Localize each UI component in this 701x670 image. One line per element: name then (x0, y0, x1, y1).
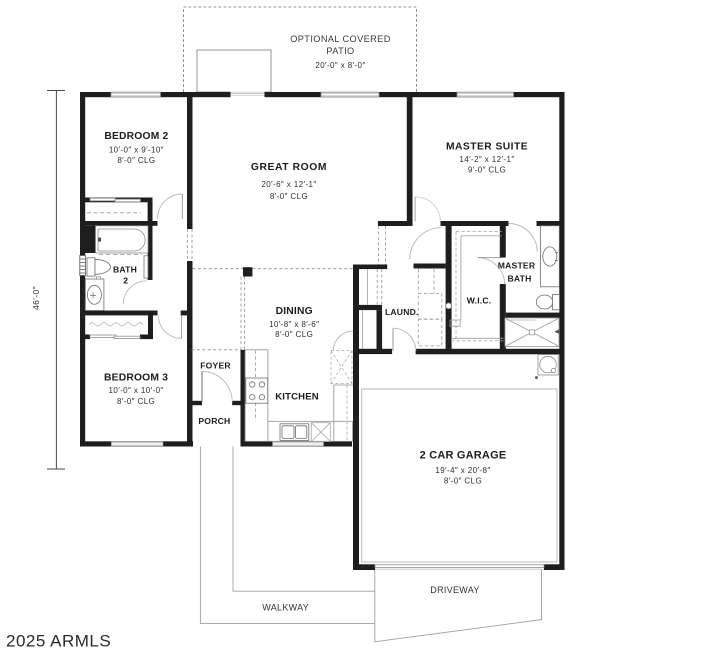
svg-text:14′-2″ x 12′-1″: 14′-2″ x 12′-1″ (459, 155, 514, 164)
svg-text:8′-0″ CLG: 8′-0″ CLG (444, 476, 482, 485)
svg-text:PATIO: PATIO (326, 46, 354, 56)
svg-text:MASTER: MASTER (498, 261, 536, 271)
svg-text:8′-0″ CLG: 8′-0″ CLG (275, 330, 313, 339)
svg-text:KITCHEN: KITCHEN (275, 392, 319, 403)
svg-text:WALKWAY: WALKWAY (262, 603, 309, 613)
svg-text:9′-0″ CLG: 9′-0″ CLG (468, 166, 506, 175)
svg-text:46′-0″: 46′-0″ (31, 286, 41, 310)
svg-text:20′-6″ x 12′-1″: 20′-6″ x 12′-1″ (261, 180, 316, 189)
svg-text:DINING: DINING (276, 306, 313, 317)
svg-text:8′-0″ CLG: 8′-0″ CLG (117, 397, 155, 406)
svg-text:BATH: BATH (507, 274, 531, 284)
svg-text:FOYER: FOYER (200, 361, 231, 371)
svg-text:GREAT ROOM: GREAT ROOM (251, 162, 327, 173)
svg-text:10′-0″ x 9′-10″: 10′-0″ x 9′-10″ (109, 146, 164, 155)
svg-text:2 CAR GARAGE: 2 CAR GARAGE (420, 450, 507, 462)
svg-text:PORCH: PORCH (198, 416, 230, 426)
svg-text:BEDROOM 3: BEDROOM 3 (104, 373, 168, 384)
svg-text:LAUND.: LAUND. (385, 307, 419, 317)
svg-text:19′-4″ x 20′-8″: 19′-4″ x 20′-8″ (435, 466, 490, 475)
svg-text:MASTER SUITE: MASTER SUITE (446, 142, 528, 153)
svg-text:10′-0″ x 10′-0″: 10′-0″ x 10′-0″ (109, 386, 164, 395)
svg-text:8′-0″ CLG: 8′-0″ CLG (270, 192, 308, 201)
svg-text:W.I.C.: W.I.C. (467, 295, 492, 305)
svg-text:DRIVEWAY: DRIVEWAY (430, 585, 479, 595)
svg-text:2025 ARMLS: 2025 ARMLS (6, 632, 111, 651)
svg-text:2: 2 (123, 276, 128, 286)
svg-text:10′-8″ x 8′-6″: 10′-8″ x 8′-6″ (269, 320, 319, 329)
svg-text:OPTIONAL COVERED: OPTIONAL COVERED (290, 34, 391, 44)
svg-text:BATH: BATH (113, 265, 137, 275)
svg-text:BEDROOM 2: BEDROOM 2 (104, 131, 168, 142)
svg-text:8′-0″ CLG: 8′-0″ CLG (117, 156, 155, 165)
svg-text:20′-0″ x 8′-0″: 20′-0″ x 8′-0″ (315, 61, 365, 70)
